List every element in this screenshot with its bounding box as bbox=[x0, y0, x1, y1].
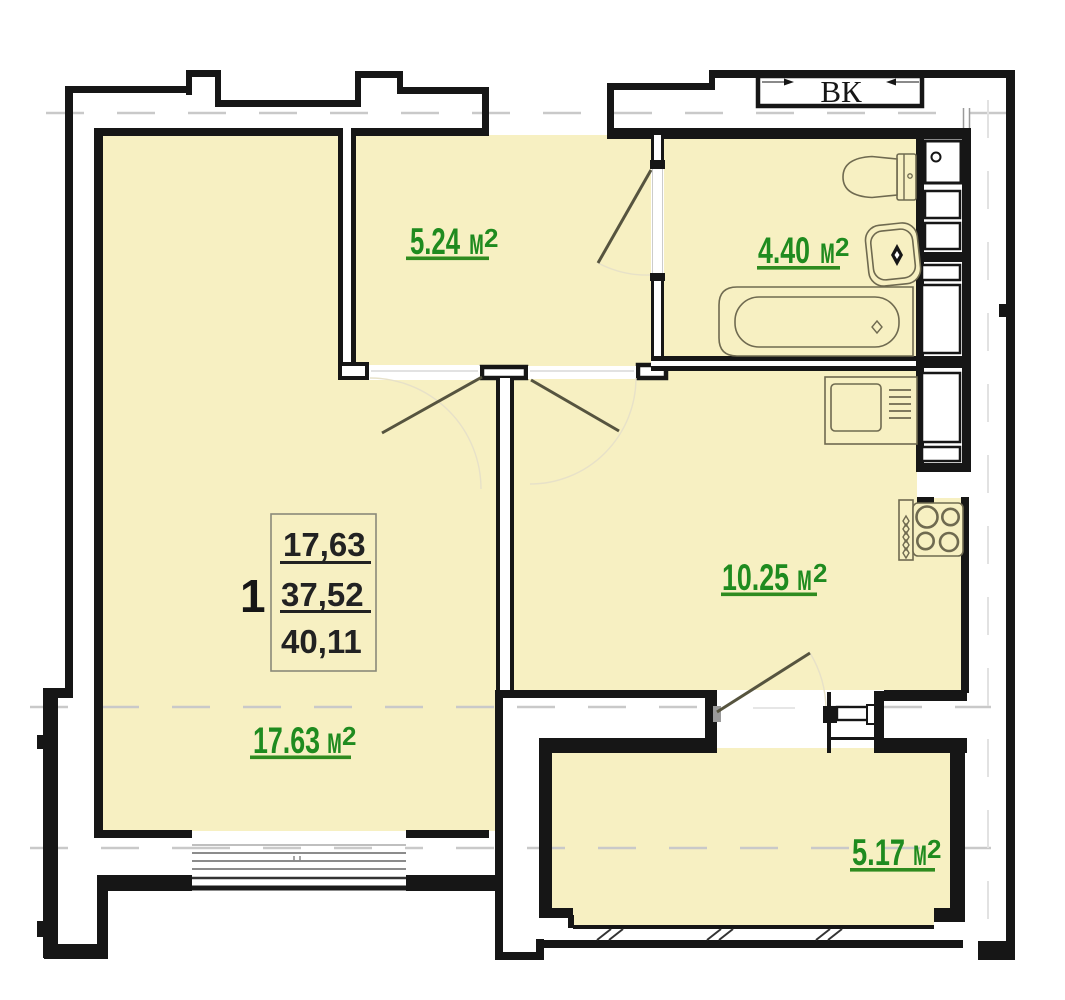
svg-text:м: м bbox=[327, 720, 342, 761]
svg-text:17.63: 17.63 bbox=[253, 720, 320, 761]
svg-text:37,52: 37,52 bbox=[281, 576, 364, 613]
svg-text:м: м bbox=[797, 557, 812, 598]
svg-text:2: 2 bbox=[927, 834, 941, 864]
svg-text:4.40: 4.40 bbox=[758, 230, 810, 271]
svg-text:2: 2 bbox=[484, 223, 498, 253]
svg-text:м: м bbox=[913, 832, 927, 873]
svg-text:10.25: 10.25 bbox=[722, 557, 789, 598]
svg-text:1: 1 bbox=[240, 570, 266, 622]
svg-text:2: 2 bbox=[342, 721, 356, 751]
svg-text:2: 2 bbox=[813, 558, 827, 588]
svg-text:м: м bbox=[469, 221, 484, 262]
svg-text:40,11: 40,11 bbox=[281, 623, 362, 660]
svg-text:5.17: 5.17 bbox=[852, 832, 905, 873]
svg-text:м: м bbox=[820, 230, 835, 271]
svg-text:5.24: 5.24 bbox=[410, 221, 460, 262]
svg-text:17,63: 17,63 bbox=[283, 526, 366, 563]
svg-text:ВК: ВК bbox=[820, 74, 862, 109]
svg-text:2: 2 bbox=[835, 232, 849, 262]
